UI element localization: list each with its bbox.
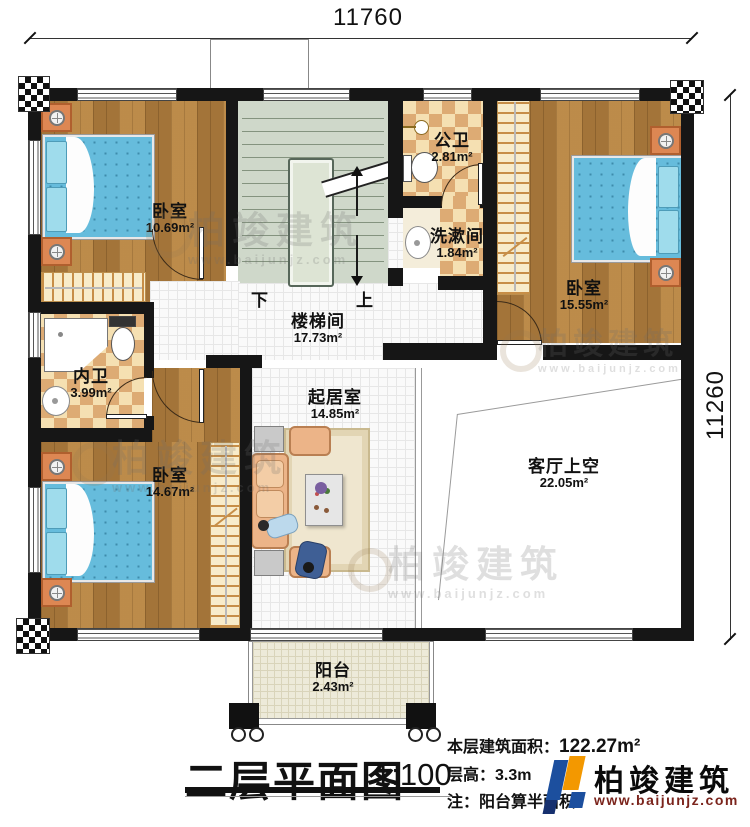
floor-hall-west — [150, 281, 240, 360]
page-title: 二层平面图 — [185, 748, 405, 809]
dimension-line-right — [730, 95, 731, 640]
stair-label-down: 下 — [251, 286, 268, 311]
wall-segment — [398, 196, 442, 208]
watermark-logo-icon — [500, 330, 542, 372]
pillow — [658, 166, 679, 208]
info-floor-height: 层高：3.3m — [447, 761, 531, 785]
nightstand — [650, 258, 681, 287]
balcony-post — [406, 703, 436, 729]
info-floor-area: 本层建筑面积：122.27m² — [447, 733, 640, 758]
corner-hatch — [18, 76, 50, 112]
wall-segment — [383, 628, 485, 641]
tea-cup — [324, 508, 329, 513]
company-logo-icon — [544, 756, 592, 816]
bed-sheet — [628, 158, 656, 256]
dimension-line-top — [30, 38, 692, 39]
toilet-bowl — [111, 327, 135, 361]
wall-segment — [681, 88, 694, 641]
wall-segment — [28, 235, 41, 312]
window — [77, 88, 177, 101]
wall-segment — [438, 276, 495, 290]
room-label-living: 起居室 14.85m² — [308, 389, 362, 420]
company-url: www.baijunjz.com — [594, 792, 739, 808]
floor-plan-canvas: 11760 11260 — [0, 0, 750, 827]
corner-hatch — [670, 80, 704, 114]
wall-segment — [206, 355, 262, 368]
shower-drain — [58, 332, 63, 337]
pillow — [46, 187, 67, 232]
balcony-column — [408, 727, 423, 742]
room-label-balcony: 阳台 2.43m² — [312, 662, 353, 693]
stair-arrow-up-head — [351, 160, 363, 176]
wall-segment — [177, 88, 263, 101]
window — [263, 88, 350, 101]
pillow — [46, 532, 67, 575]
room-label-inner-bath: 内卫 3.99m² — [70, 368, 111, 399]
balcony-column — [231, 727, 246, 742]
person-head — [303, 562, 314, 573]
corner-hatch — [16, 618, 50, 654]
window — [423, 88, 472, 101]
wardrobe-bedroom-tl — [41, 272, 146, 302]
sink-drain — [414, 240, 420, 246]
nightstand — [41, 452, 72, 481]
wall-segment — [383, 343, 497, 360]
side-table — [254, 550, 284, 576]
logo-shape-blue-small — [568, 792, 585, 808]
nightstand — [41, 578, 72, 607]
stair-label-up: 上 — [356, 286, 373, 311]
window — [28, 312, 41, 358]
watermark: 柏竣建筑 www.baijunjz.com — [188, 212, 364, 266]
coffee-table — [305, 474, 343, 526]
door-leaf — [199, 369, 204, 423]
pillow — [46, 141, 67, 184]
window — [485, 628, 633, 641]
balcony-sliding-door — [250, 628, 383, 641]
watermark-logo-icon — [72, 442, 116, 486]
door-leaf — [106, 414, 147, 419]
window — [28, 140, 41, 235]
pillow — [658, 210, 679, 254]
wall-segment — [633, 628, 694, 641]
room-label-stairwell: 楼梯间 17.73m² — [291, 313, 345, 344]
roof-stub-outline — [210, 39, 309, 91]
title-underline-thin — [185, 796, 461, 797]
dimension-right: 11260 — [702, 380, 730, 440]
window — [540, 88, 640, 101]
nightstand — [650, 126, 681, 155]
watermark-logo-icon — [348, 548, 392, 592]
door-leaf — [478, 163, 483, 205]
watermark: 柏竣建筑 www.baijunjz.com — [538, 330, 681, 375]
armchair — [289, 426, 331, 456]
table-flowers — [315, 482, 327, 494]
sink-drain — [52, 398, 58, 404]
balcony-column — [249, 727, 264, 742]
room-label-washroom: 洗漱间 1.84m² — [430, 228, 484, 259]
room-label-bedroom-tr: 卧室 15.55m² — [560, 280, 608, 311]
wall-segment — [483, 88, 497, 360]
wall-segment — [28, 302, 150, 314]
room-label-public-bath: 公卫 2.81m² — [431, 132, 472, 163]
watermark-logo-icon — [146, 212, 192, 258]
balcony-column — [426, 727, 441, 742]
balcony-post — [229, 703, 259, 729]
logo-shape-darkblue — [543, 800, 558, 814]
wall-segment — [388, 268, 403, 286]
wall-segment — [350, 88, 423, 101]
window — [77, 628, 200, 641]
person-head — [258, 520, 269, 531]
pillow — [46, 488, 67, 529]
window — [28, 487, 41, 573]
toilet-tank — [109, 316, 136, 327]
tea-cup — [314, 505, 319, 510]
room-label-void: 客厅上空 22.05m² — [528, 458, 600, 489]
ceiling-light-icon — [414, 120, 429, 135]
dimension-top: 11760 — [333, 4, 403, 32]
wardrobe-bedroom-tr — [497, 98, 530, 295]
wall-segment — [200, 628, 250, 641]
watermark: 柏竣建筑 www.baijunjz.com — [388, 546, 564, 600]
wall-segment — [28, 358, 41, 487]
title-underline — [185, 787, 440, 793]
nightstand — [41, 237, 72, 266]
wall-segment — [144, 314, 154, 378]
watermark: 柏竣建筑 www.baijunjz.com — [112, 440, 288, 494]
